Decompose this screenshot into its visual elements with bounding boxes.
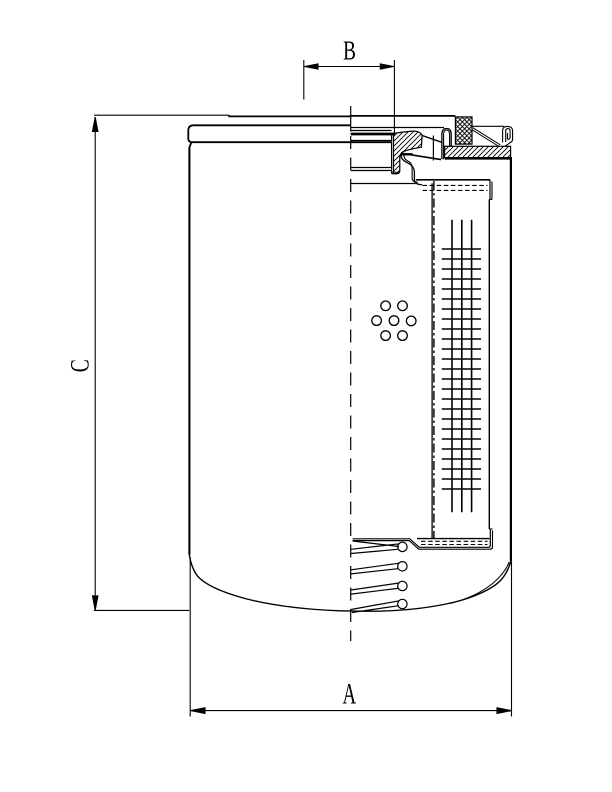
svg-text:C: C — [66, 359, 94, 372]
svg-text:A: A — [342, 678, 356, 710]
svg-text:B: B — [343, 36, 356, 66]
